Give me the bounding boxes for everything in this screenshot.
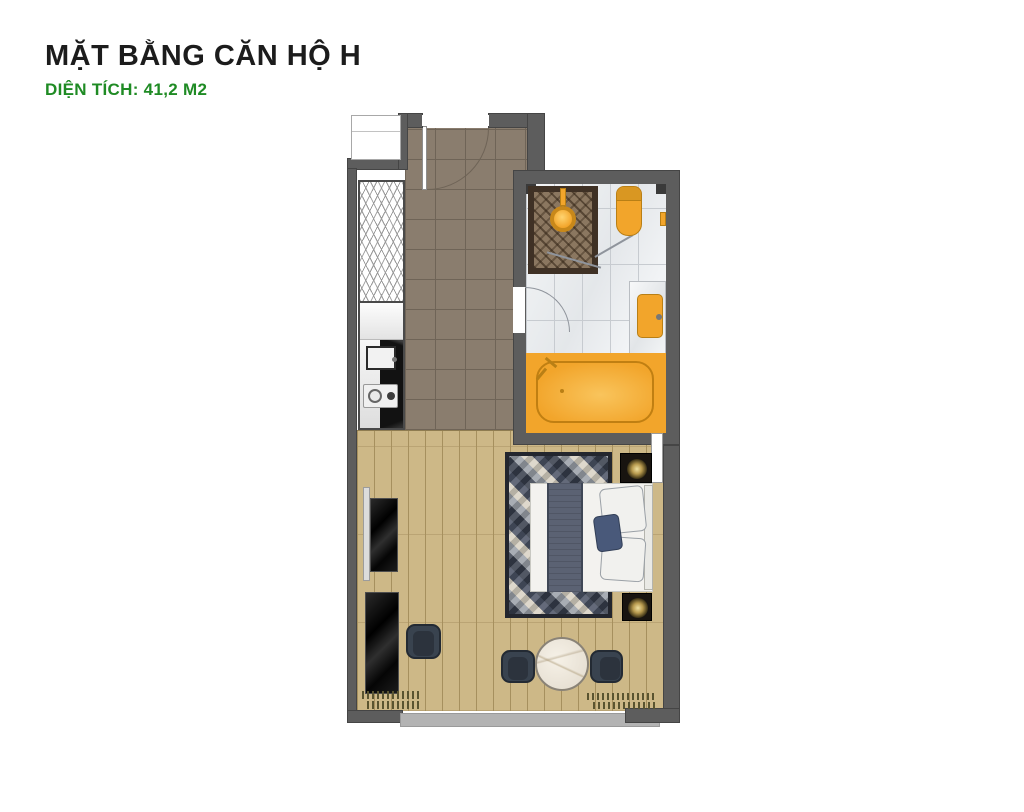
vanity-faucet (656, 314, 662, 320)
dining-chair-right (590, 650, 623, 683)
round-dining-table (535, 637, 589, 691)
balcony-sill (400, 713, 660, 727)
armchair-cushion (413, 631, 434, 656)
right-outer-wall (663, 445, 680, 711)
bathtub (526, 353, 666, 433)
vanity-sink (637, 294, 663, 338)
page-title: MẶT BẰNG CĂN HỘ H (45, 40, 361, 73)
kitchen-sink (366, 346, 396, 370)
right-wall-window-panel (651, 433, 663, 483)
nightstand-bottom (622, 593, 652, 621)
bathtub-basin (536, 361, 654, 423)
burner-dot-icon (387, 392, 395, 400)
bed-runner (547, 483, 583, 592)
shower-head-icon (550, 206, 576, 232)
curtain-right-row2 (593, 702, 655, 709)
headboard (644, 485, 653, 590)
curtain-left (362, 691, 420, 699)
bottom-left-corner-wall (347, 710, 403, 723)
bottom-right-corner-wall (625, 708, 680, 723)
kitchen-counter-strip (358, 180, 405, 430)
shower-arm (560, 188, 566, 206)
page-subtitle: DIỆN TÍCH: 41,2 M2 (45, 80, 207, 100)
toilet-paper-holder (660, 212, 666, 226)
tub-drain (560, 389, 564, 393)
vanity-counter (629, 281, 666, 354)
bathroom-door-opening (513, 287, 525, 333)
niche-divider-line (352, 131, 400, 132)
floor-plan (345, 113, 685, 733)
curtain-left-row2 (367, 701, 420, 709)
tv-console (370, 498, 398, 572)
shower-area (528, 186, 598, 274)
tv-screen (363, 487, 370, 581)
fridge (360, 303, 403, 340)
kitchen-counter (360, 340, 403, 428)
kitchen-faucet (392, 357, 397, 362)
dish-rack-cabinet (360, 182, 403, 303)
page: MẶT BẰNG CĂN HỘ H DIỆN TÍCH: 41,2 M2 (0, 0, 1024, 812)
lamp-icon (628, 598, 648, 618)
wardrobe (365, 592, 399, 694)
dining-chair-left (501, 650, 535, 683)
burner-ring-icon (368, 389, 382, 403)
lamp-icon (627, 459, 647, 479)
chair-cushion (508, 657, 528, 680)
nightstand-top (620, 453, 652, 483)
left-outer-wall (347, 168, 357, 723)
cooktop (363, 384, 398, 408)
chair-cushion (600, 657, 620, 680)
door-stop-right (486, 115, 489, 126)
entry-niche (351, 115, 401, 160)
toilet (616, 186, 642, 236)
armchair (406, 624, 441, 659)
entry-door-leaf (422, 126, 427, 190)
curtain-right (587, 693, 655, 700)
wall-pilaster-right (656, 184, 666, 194)
toilet-tank (617, 187, 641, 201)
door-stop-left (422, 115, 425, 126)
accent-pillow (593, 513, 624, 552)
